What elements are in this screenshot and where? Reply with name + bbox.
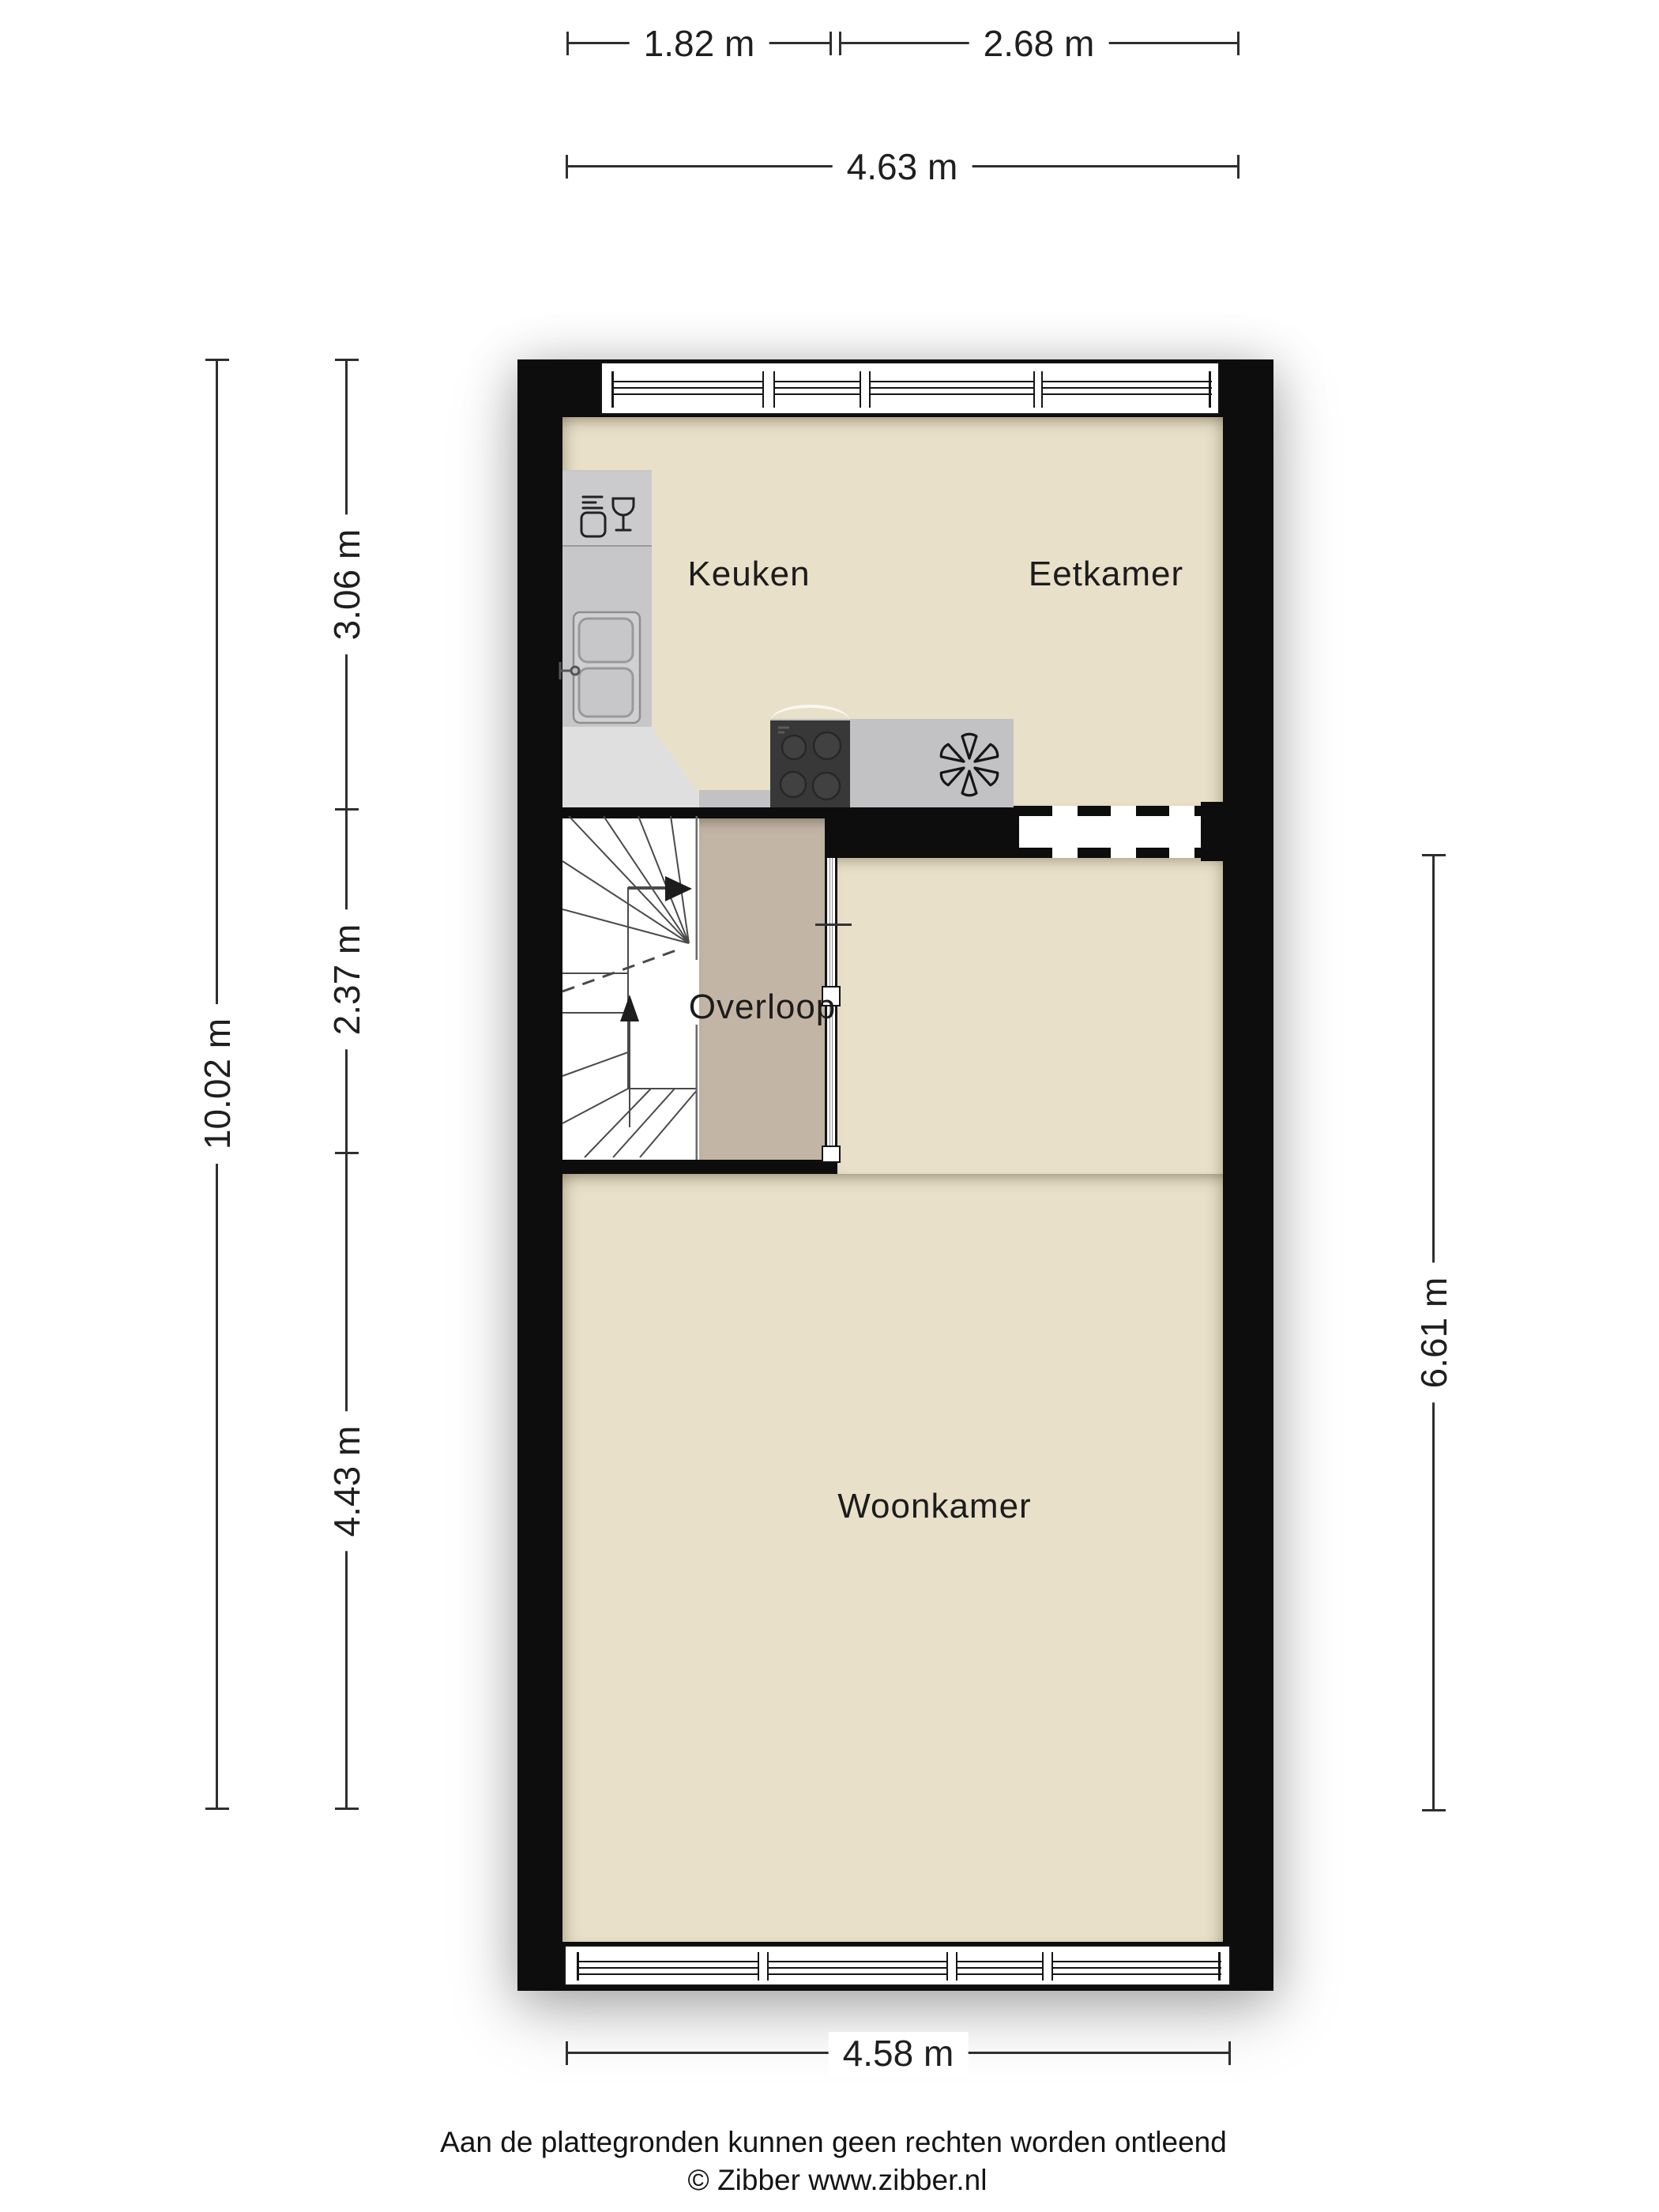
dim-label-left-seg-1: 3.06 m <box>325 515 368 655</box>
top-window-mullion <box>762 371 775 408</box>
bottom-window-mullion <box>758 1952 769 1981</box>
kitchen-counter-bottom-left <box>699 790 772 807</box>
right-wall <box>1223 359 1273 1991</box>
bottom-window-glass-line <box>577 1967 1221 1969</box>
dim-tick <box>335 359 359 361</box>
dim-tick <box>1228 2041 1231 2065</box>
opening-dash-bottom <box>1019 848 1201 858</box>
wall-under-stairs <box>557 1160 837 1174</box>
opening-dash-top <box>1019 806 1201 816</box>
dim-label-top-total: 4.63 m <box>833 145 972 188</box>
left-wall <box>517 359 562 1991</box>
top-window <box>600 362 1220 415</box>
dim-tick <box>566 32 569 55</box>
room-label-overloop: Overloop <box>689 987 837 1027</box>
stairs-up-arrow-icon <box>665 876 692 901</box>
room-label-eetkamer: Eetkamer <box>1029 555 1183 594</box>
stove-icon <box>770 720 850 807</box>
wall-eetkamer-woonkamer-right <box>1201 802 1273 861</box>
top-window-mullion <box>1033 371 1043 408</box>
disclaimer-text: Aan de plattegronden kunnen geen rechten… <box>440 2126 1227 2159</box>
top-window-glass-line <box>611 393 1212 395</box>
stairs-up-arrow-icon <box>620 995 639 1021</box>
staircase-drawing <box>562 816 698 1160</box>
floorplan-building: Keuken Eetkamer Overloop Woonkamer <box>517 359 1273 1991</box>
fan-symbol-icon <box>934 729 1005 800</box>
bottom-window-end-cap <box>577 1952 579 1981</box>
bottom-window-mullion <box>946 1952 957 1981</box>
dim-tick <box>566 155 568 179</box>
bottom-window-end-cap <box>1218 1952 1221 1981</box>
dim-tick <box>1237 155 1240 179</box>
dim-label-left-seg-3: 4.43 m <box>325 1412 368 1552</box>
dim-tick <box>1422 1809 1446 1811</box>
top-window-mullion <box>860 371 871 408</box>
dim-tick <box>1422 854 1446 856</box>
top-window-glass-line <box>611 381 1212 382</box>
room-label-woonkamer: Woonkamer <box>837 1487 1031 1526</box>
sink-icon <box>557 608 645 727</box>
dim-label-left-seg-2: 2.37 m <box>325 910 368 1050</box>
dim-label-bottom: 4.58 m <box>829 2032 969 2075</box>
dim-tick <box>1237 32 1240 55</box>
top-window-glass-line <box>611 387 1212 389</box>
room-label-keuken: Keuken <box>687 555 810 594</box>
top-left-corner-pillar <box>517 359 600 417</box>
floor-woonkamer-main <box>562 1174 1223 1942</box>
bottom-window <box>564 1945 1231 1986</box>
bottom-window-mullion <box>1042 1952 1053 1981</box>
bottom-window-glass-line <box>577 1973 1221 1975</box>
dim-label-top-1: 1.82 m <box>630 22 769 65</box>
dim-label-top-2: 2.68 m <box>969 22 1109 65</box>
copyright-text: © Zibber www.zibber.nl <box>688 2164 987 2197</box>
dim-tick <box>335 808 359 811</box>
glass-partition-end-cap <box>822 1145 841 1163</box>
dim-tick <box>829 32 832 55</box>
dim-tick <box>839 32 841 55</box>
dim-tick <box>566 2041 568 2065</box>
dishwasher <box>562 472 652 547</box>
bottom-window-glass-line <box>577 1961 1221 1962</box>
glass-partition-tick <box>815 924 852 926</box>
dim-tick <box>335 1808 359 1810</box>
stove <box>770 720 850 807</box>
wall-eetkamer-woonkamer-left <box>825 806 1019 858</box>
top-right-corner-pillar <box>1220 359 1273 417</box>
dishwasher-icon <box>562 472 652 547</box>
wall-opening-eetkamer-woonkamer <box>1019 806 1201 858</box>
dim-tick <box>205 359 229 361</box>
top-window-end-cap <box>1209 371 1211 408</box>
floor-woonkamer-upper-arm <box>837 858 1223 1174</box>
dim-tick <box>205 1808 229 1810</box>
dim-label-left-total: 10.02 m <box>196 1004 239 1164</box>
dim-tick <box>335 1152 359 1154</box>
top-window-end-cap <box>611 371 614 408</box>
dim-label-right: 6.61 m <box>1413 1263 1455 1403</box>
